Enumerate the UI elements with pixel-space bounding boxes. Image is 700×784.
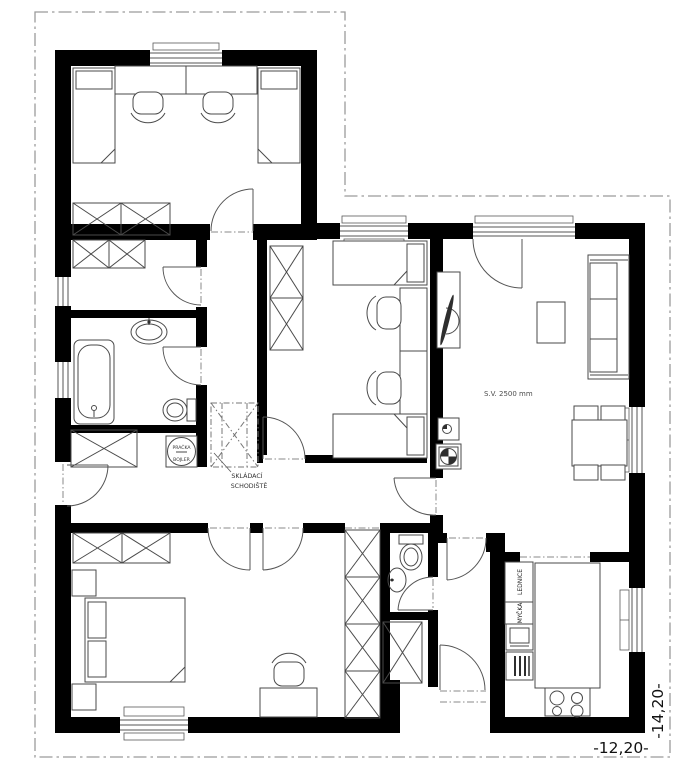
wardrobe <box>270 246 303 350</box>
door-hall-closet <box>163 267 201 305</box>
dining-chair <box>601 465 625 480</box>
bathroom-sink <box>131 318 167 344</box>
fireplace <box>437 272 460 348</box>
cooktop <box>545 688 590 717</box>
desk <box>260 688 317 717</box>
toilet <box>399 535 423 570</box>
dining-chair <box>574 406 598 421</box>
single-bed-left <box>73 68 115 163</box>
room-middle-bedroom <box>270 241 427 458</box>
nightstand <box>72 570 96 596</box>
folding-stairs-label-line2: SCHODIŠTĚ <box>231 481 268 490</box>
room-bathroom <box>74 318 196 424</box>
sofa <box>588 255 629 379</box>
door-children-room <box>211 189 253 232</box>
door-bathroom <box>163 347 201 385</box>
room-study <box>260 530 380 718</box>
oven <box>506 624 533 650</box>
bathtub <box>74 340 114 424</box>
desk-chair <box>201 92 235 123</box>
floor-plan-page: PRAČKA BOJLER SKLÁDACÍ SCHODIŠTĚ <box>0 0 700 784</box>
room-living: S.V. 2500 mm <box>436 255 629 480</box>
door-middle-bedroom <box>263 417 305 459</box>
heater-unit <box>436 444 461 469</box>
door-main-bedroom <box>208 528 250 570</box>
window-bathroom <box>58 362 68 398</box>
door-side-entrance <box>63 464 108 506</box>
single-bed-right <box>258 68 300 163</box>
door-study <box>263 528 303 570</box>
desk <box>400 288 427 414</box>
faucet <box>147 320 150 323</box>
dimension-height: -14,20- <box>649 683 667 739</box>
dining-set <box>572 406 627 480</box>
dishwasher-label: MYČKA <box>517 602 524 624</box>
double-bed <box>85 598 185 682</box>
door-swing-arc <box>473 239 522 288</box>
wardrobe <box>73 533 170 563</box>
folding-stairs-label-line1: SKLÁDACÍ <box>231 471 262 480</box>
hall-closet <box>73 240 145 268</box>
wc-sink <box>388 568 406 592</box>
french-door-living-room <box>473 216 575 288</box>
room-children-bedroom <box>73 66 300 235</box>
fridge: LEDNICE <box>505 562 533 602</box>
room-kitchen: LEDNICE MYČKA <box>505 562 600 717</box>
door-wc <box>398 577 433 610</box>
dining-table <box>572 420 627 466</box>
drain <box>92 406 97 411</box>
dining-chair <box>601 406 625 421</box>
faucet <box>391 579 394 582</box>
desk-chair <box>367 296 401 330</box>
single-bed-bottom <box>333 414 427 458</box>
ceiling-height-label: S.V. 2500 mm <box>484 390 533 398</box>
door-corridor-living <box>394 478 436 515</box>
fridge-label: LEDNICE <box>517 569 524 595</box>
wardrobe <box>71 430 137 467</box>
double-desk <box>115 66 257 94</box>
toilet <box>163 399 196 421</box>
coffee-table <box>537 302 565 343</box>
desk-chair <box>367 371 401 405</box>
nightstand <box>72 684 96 710</box>
window-sill <box>124 707 184 716</box>
floor-plan-drawing: PRAČKA BOJLER SKLÁDACÍ SCHODIŠTĚ <box>0 0 700 784</box>
kitchen-appliance-grill <box>506 652 533 680</box>
kitchen-island <box>535 563 600 688</box>
boiler-unit <box>438 418 459 440</box>
window-sill <box>124 733 184 740</box>
door-living-entry <box>447 538 486 580</box>
window-kitchen <box>620 588 642 652</box>
washer-label-line1: PRAČKA <box>172 444 191 451</box>
dimension-width: -12,20- <box>593 739 649 757</box>
desk-chair <box>272 653 306 686</box>
dishwasher: MYČKA <box>505 602 533 624</box>
entrance-door <box>440 645 486 702</box>
washing-machine-boiler: PRAČKA BOJLER <box>166 436 197 467</box>
wardrobe-tall <box>345 530 380 718</box>
dining-chair <box>574 465 598 480</box>
window-main-bedroom <box>120 707 188 740</box>
single-bed-top <box>333 241 427 285</box>
washer-label-line2: BOJLER <box>173 457 191 463</box>
window-hall <box>58 277 68 306</box>
room-main-bedroom <box>72 533 185 710</box>
desk-chair <box>131 92 165 123</box>
laundry-nook: PRAČKA BOJLER <box>71 430 197 467</box>
